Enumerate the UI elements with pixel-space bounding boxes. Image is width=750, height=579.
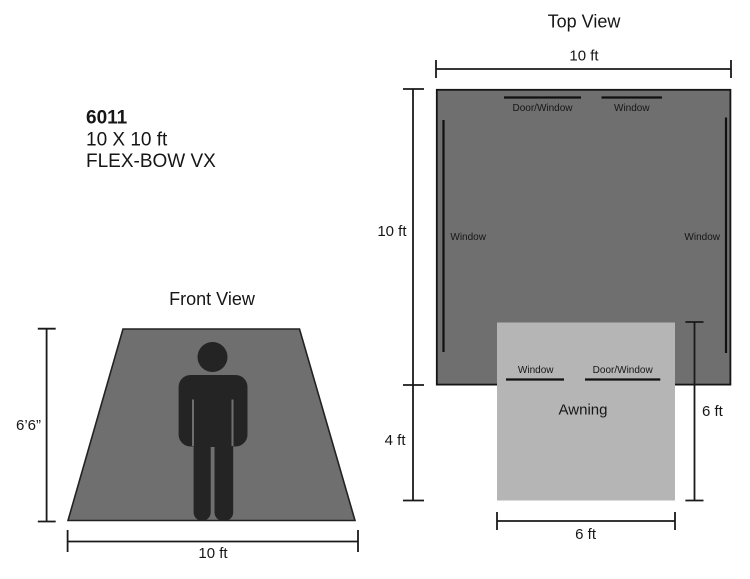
svg-text:FLEX-BOW VX: FLEX-BOW VX	[86, 151, 216, 172]
svg-text:Window: Window	[450, 232, 486, 243]
svg-text:Door/Window: Door/Window	[593, 365, 654, 376]
svg-text:Top View: Top View	[548, 12, 622, 32]
svg-text:6’6”: 6’6”	[16, 417, 41, 434]
svg-text:Window: Window	[614, 103, 650, 114]
svg-text:Door/Window: Door/Window	[512, 103, 573, 114]
svg-text:4 ft: 4 ft	[385, 432, 407, 449]
svg-text:Awning: Awning	[559, 402, 608, 419]
svg-text:Window: Window	[684, 232, 720, 243]
svg-text:6 ft: 6 ft	[702, 403, 724, 420]
svg-text:6011: 6011	[86, 108, 128, 129]
svg-text:10 ft: 10 ft	[377, 223, 407, 240]
svg-text:10 ft: 10 ft	[198, 545, 228, 562]
svg-text:Window: Window	[518, 365, 554, 376]
svg-text:10 X 10 ft: 10 X 10 ft	[86, 130, 168, 151]
svg-text:Front View: Front View	[169, 289, 256, 309]
svg-text:6 ft: 6 ft	[575, 526, 597, 543]
svg-text:10 ft: 10 ft	[569, 48, 599, 65]
